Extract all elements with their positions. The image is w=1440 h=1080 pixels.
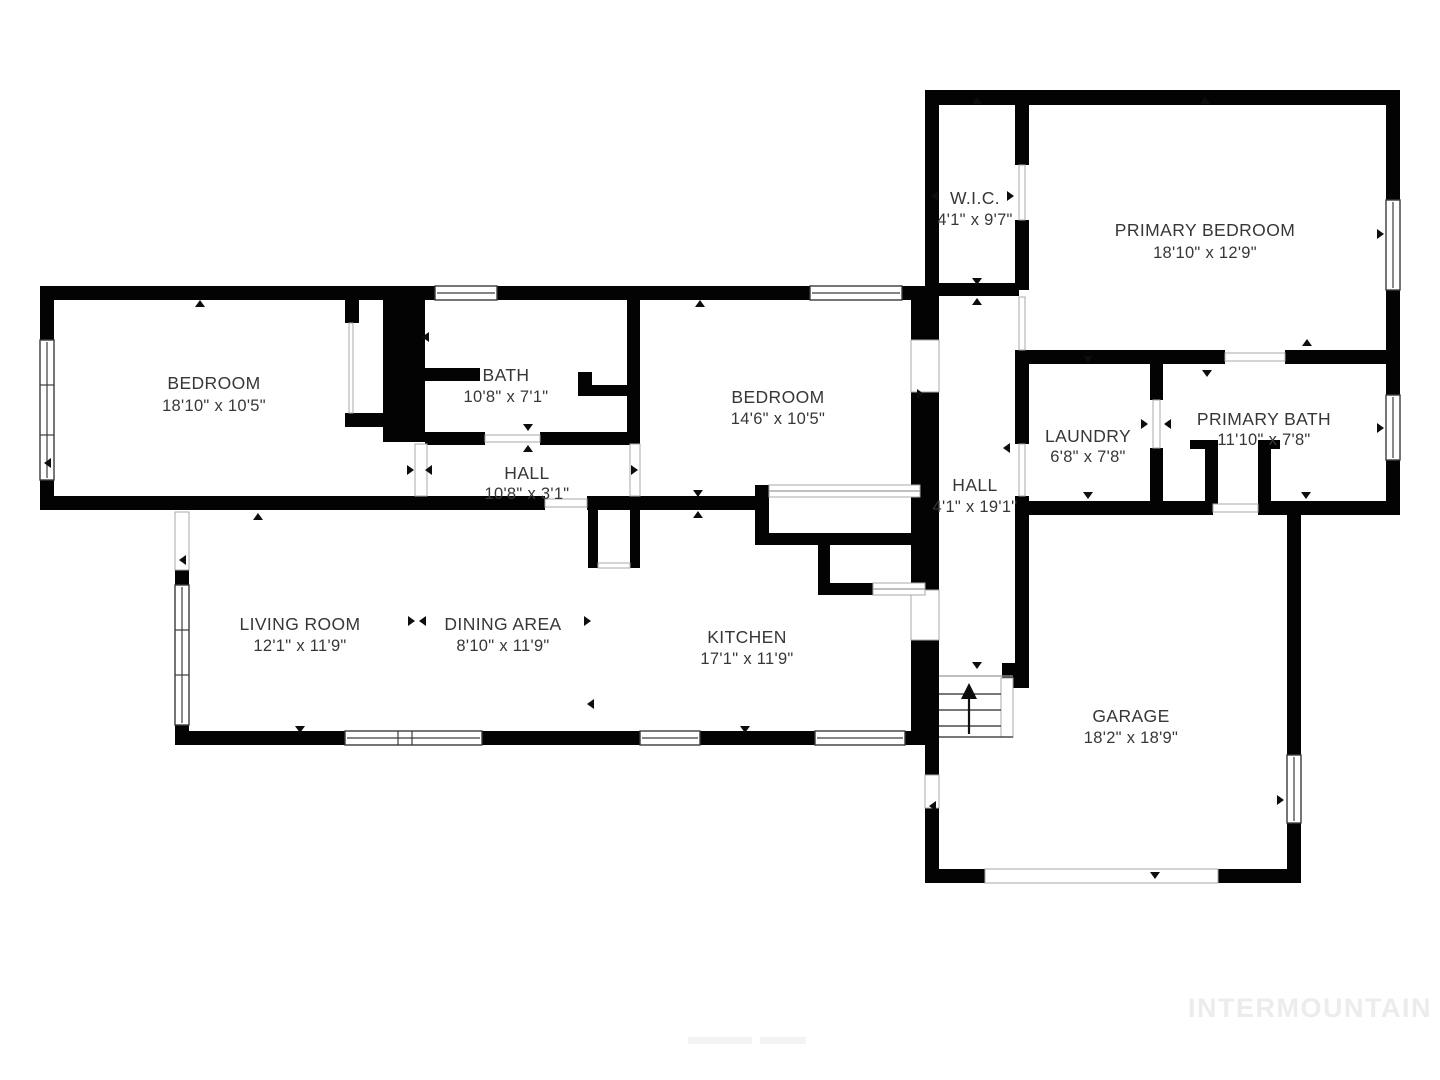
svg-text:11'10" x 7'8": 11'10" x 7'8"	[1217, 431, 1310, 449]
room-label-hall-bedroom-wing: HALL 10'8" x 3'1"	[485, 463, 570, 503]
svg-text:18'2" x 18'9": 18'2" x 18'9"	[1084, 729, 1178, 747]
door-openings	[175, 165, 1285, 883]
window-bath-top	[435, 286, 497, 300]
window-bedroom-middle-top	[810, 286, 902, 300]
svg-text:W.I.C.: W.I.C.	[950, 188, 1000, 208]
window-primary-bedroom-side	[1386, 200, 1400, 290]
window-garage-side	[1287, 755, 1301, 823]
room-label-hall-main: HALL 4'1" x 19'1"	[933, 475, 1018, 516]
room-label-garage: GARAGE 18'2" x 18'9"	[1084, 706, 1178, 747]
svg-text:GARAGE: GARAGE	[1092, 706, 1169, 726]
room-label-bedroom-left: BEDROOM 18'10" x 10'5"	[162, 373, 266, 415]
door-markers	[44, 97, 1384, 879]
closet-slider-bedroom-left	[349, 323, 353, 413]
window-kitchen-bottom-1	[640, 731, 700, 745]
svg-text:14'6" x 10'5": 14'6" x 10'5"	[731, 410, 825, 428]
svg-text:8'10" x 11'9": 8'10" x 11'9"	[456, 637, 549, 655]
window-kitchen-bottom-2	[815, 731, 905, 745]
svg-text:17'1" x 11'9": 17'1" x 11'9"	[700, 650, 793, 668]
svg-text:18'10" x 10'5": 18'10" x 10'5"	[162, 397, 266, 415]
room-label-wic: W.I.C. 4'1" x 9'7"	[937, 188, 1012, 229]
garage-door	[985, 869, 1218, 883]
faint-logo	[688, 1037, 806, 1044]
closet-bypass-door-1	[769, 485, 920, 497]
walls	[40, 90, 1400, 883]
window-living-room-side	[175, 585, 189, 725]
floorplan-svg: W.I.C. 4'1" x 9'7" PRIMARY BEDROOM 18'10…	[0, 0, 1440, 1080]
svg-text:DINING AREA: DINING AREA	[444, 614, 561, 634]
room-label-laundry: LAUNDRY 6'8" x 7'8"	[1045, 426, 1131, 466]
room-label-primary-bath: PRIMARY BATH 11'10" x 7'8"	[1197, 409, 1331, 449]
room-label-kitchen: KITCHEN 17'1" x 11'9"	[700, 627, 793, 668]
svg-text:HALL: HALL	[504, 463, 549, 483]
room-label-bedroom-middle: BEDROOM 14'6" x 10'5"	[731, 387, 825, 428]
svg-text:10'8" x 7'1": 10'8" x 7'1"	[464, 388, 549, 406]
room-label-primary-bedroom: PRIMARY BEDROOM 18'10" x 12'9"	[1115, 220, 1295, 262]
svg-text:BATH: BATH	[483, 365, 530, 385]
svg-text:BEDROOM: BEDROOM	[731, 387, 824, 407]
svg-text:12'1" x 11'9": 12'1" x 11'9"	[253, 637, 346, 655]
closet-bypass-door-2	[873, 583, 925, 595]
svg-text:LIVING ROOM: LIVING ROOM	[239, 614, 360, 634]
svg-text:4'1" x 19'1": 4'1" x 19'1"	[933, 498, 1018, 516]
window-primary-bath-side	[1386, 395, 1400, 460]
window-bedroom-left-side	[40, 340, 54, 480]
svg-text:10'8" x 3'1": 10'8" x 3'1"	[485, 485, 570, 503]
window-living-bottom-1	[345, 731, 482, 745]
brand-watermark: INTERMOUNTAIN	[1188, 993, 1432, 1023]
svg-text:PRIMARY BEDROOM: PRIMARY BEDROOM	[1115, 220, 1295, 240]
svg-text:LAUNDRY: LAUNDRY	[1045, 426, 1131, 446]
room-label-dining-area: DINING AREA 8'10" x 11'9"	[444, 614, 561, 655]
svg-text:KITCHEN: KITCHEN	[707, 627, 787, 647]
svg-text:BEDROOM: BEDROOM	[167, 373, 260, 393]
stairs	[939, 678, 1013, 737]
svg-text:18'10" x 12'9": 18'10" x 12'9"	[1153, 244, 1257, 262]
svg-text:4'1" x 9'7": 4'1" x 9'7"	[937, 211, 1012, 229]
svg-text:6'8" x 7'8": 6'8" x 7'8"	[1050, 448, 1125, 466]
floorplan-page: W.I.C. 4'1" x 9'7" PRIMARY BEDROOM 18'10…	[0, 0, 1440, 1080]
svg-text:PRIMARY BATH: PRIMARY BATH	[1197, 409, 1331, 429]
svg-text:HALL: HALL	[952, 475, 997, 495]
room-label-living-room: LIVING ROOM 12'1" x 11'9"	[239, 614, 360, 655]
stair-stringer	[1001, 678, 1013, 737]
